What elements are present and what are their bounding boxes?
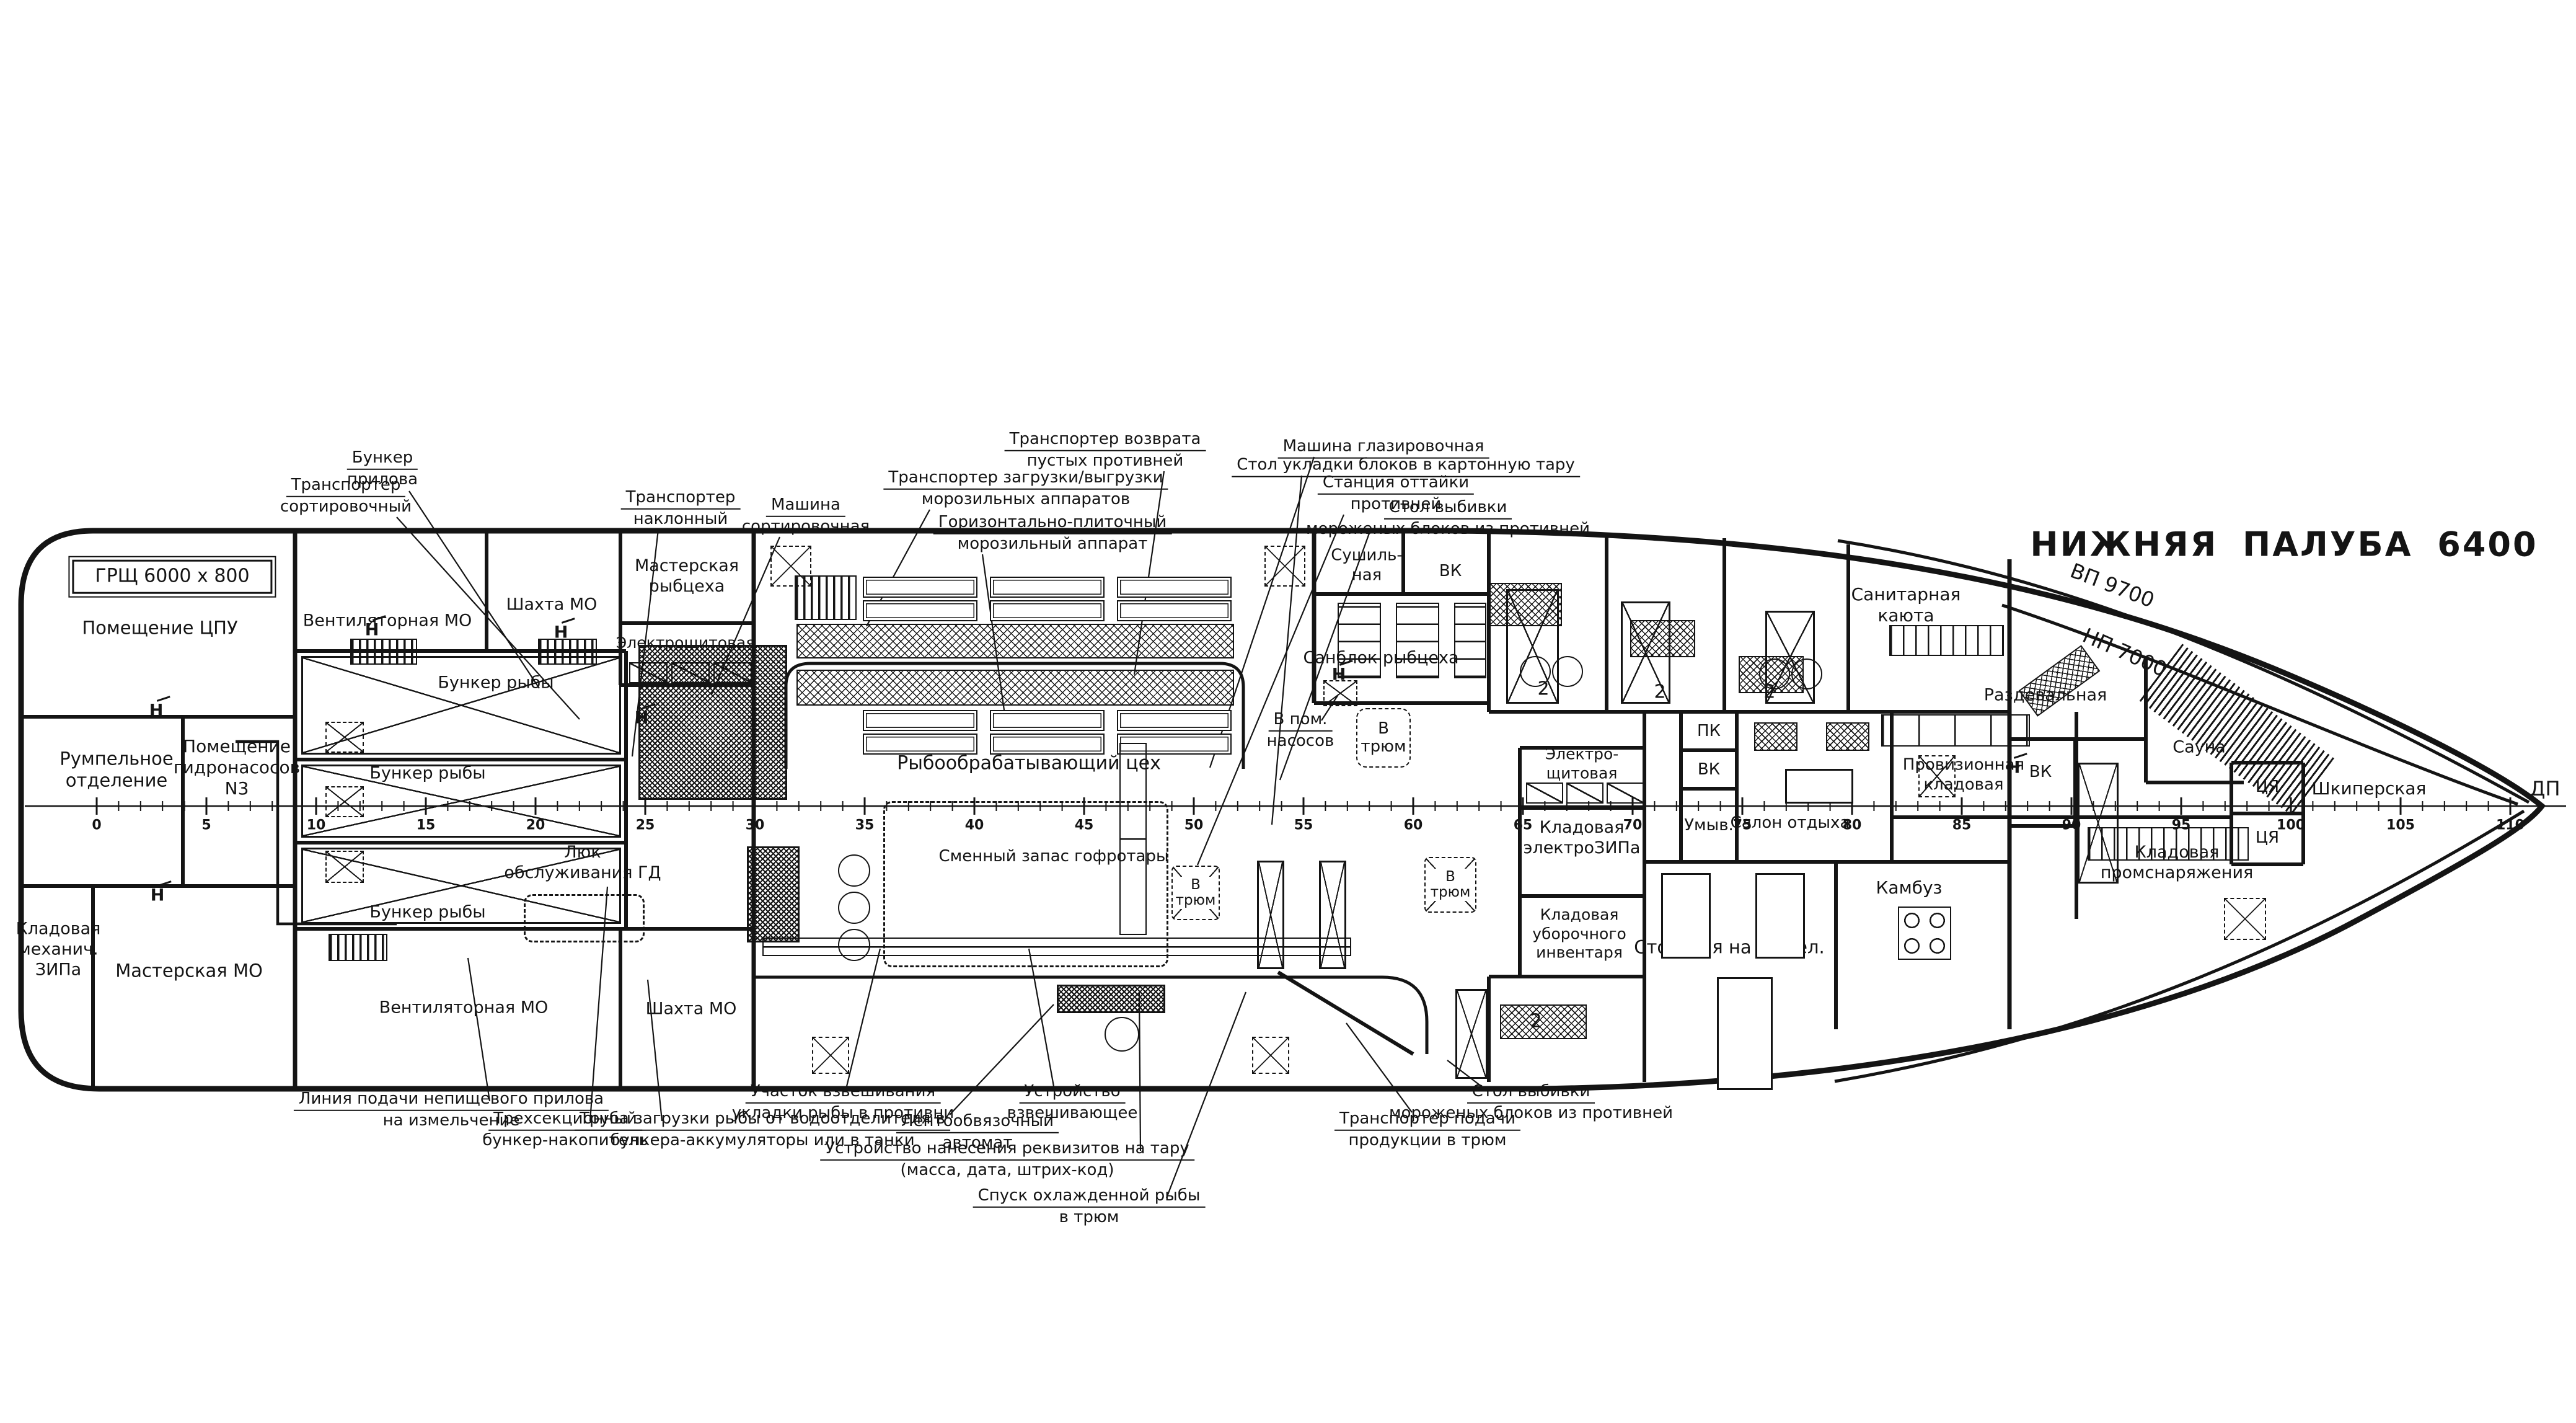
callout-label: Горизонтально-плиточныйморозильный аппар… [933,513,1172,554]
callout-line: мороженых блоков из противней [1306,520,1590,539]
leader-line [1139,992,1140,1151]
frame-number: 35 [855,818,875,833]
equipment-xdash [1252,1037,1289,1074]
equipment-diamond [1754,722,1797,751]
equipment-circle [1759,658,1790,689]
hold-hatch-label: В трюм [1429,869,1473,902]
room-label: Помещение ЦПУ [82,617,237,639]
drawing-title: НИЖНЯЯ ПАЛУБА 6400 [2030,525,2538,564]
callout-line: Стол выбивки [1389,1082,1673,1104]
equipment-circle [1105,1017,1139,1052]
room-label: ГРЩ 6000 х 800 [72,560,272,594]
equipment-xdash [1264,546,1305,587]
equipment-diamond [1630,620,1695,657]
callout-label: Транспортерсортировочный [280,476,412,516]
room-label: Мастерская МО [115,960,263,982]
frame-number: 60 [1404,818,1423,833]
callout-line: морозильный аппарат [933,534,1172,554]
equipment-table [1661,873,1711,959]
equipment-mesh [796,670,1234,706]
leader-line [468,958,490,1101]
callout-line: Стол выбивки [1306,498,1590,520]
equipment-freezer [990,577,1105,598]
room-label: ВК [1439,562,1462,582]
callout-line: насосов [1267,732,1334,751]
frame-number: 105 [2386,818,2415,833]
equipment-freezer [863,577,977,598]
callout-line: сортировочная [742,517,870,537]
equipment-dashbox [883,801,1168,967]
equipment-diamond [1488,583,1562,626]
room-label: Мастерская рыбцеха [635,556,739,597]
room-label: Вентиляторная МО [303,611,472,632]
room-label: ВК [2029,763,2052,782]
equipment-stove [1898,907,1951,960]
callout-label: Стол выбивкимороженых блоков из противне… [1389,1082,1673,1123]
callout-label: Транспортер загрузки/выгрузкиморозильных… [883,468,1168,509]
hold-hatch-box: В трюм [1171,866,1220,920]
callout-line: Транспортер возврата [1005,430,1206,451]
equipment-sbox [629,662,668,683]
callout-line: в трюм [973,1208,1206,1228]
callout-line: Транспортер [621,488,741,510]
frame-number: 55 [1294,818,1313,833]
frame-number: 100 [2277,818,2305,833]
equipment-lift [1257,861,1284,969]
equipment-sbox [1566,782,1603,804]
frame-number: 80 [1843,818,1862,833]
frame-number: 25 [636,818,655,833]
callout-line: продукции в трюм [1334,1131,1520,1151]
callout-line: пустых противней [1005,451,1206,471]
callout-label: Устройство нанесения реквизитов на тару(… [820,1139,1194,1180]
equipment-freezer [863,710,977,731]
equipment-lift [1319,861,1346,969]
equipment-ladder [1889,625,2004,656]
callout-line: В пом. [1267,710,1334,732]
equipment-xdash [325,851,364,883]
room-label: ВК [1698,760,1720,780]
hold-hatch-label: В трюм [1359,719,1408,756]
callout-line: Машина [742,495,870,517]
equipment-grill [350,639,417,665]
callout-line: Бункер [347,448,418,470]
callout-line: сортировочный [280,497,412,517]
callout-label: Транспортер возвратапустых противней [1005,430,1206,471]
hydrant-symbol: Н [149,701,164,720]
callout-line: мороженых блоков из противней [1389,1104,1673,1124]
room-label: Румпельное отделение [60,748,174,792]
equipment-grill [329,934,387,961]
equipment-diamond [1826,722,1869,751]
equipment-freezer [1117,577,1232,598]
equipment-freezer [863,600,977,621]
frame-number: 110 [2496,818,2525,833]
frame-number: 65 [1514,818,1533,833]
equipment-diamond [1500,1004,1587,1039]
callout-line: Устройство [1007,1082,1138,1104]
equipment-circle [838,854,870,887]
equipment-lift [1455,989,1488,1079]
room-label: Шкиперская [2312,778,2427,799]
callout-label: Стол выбивкимороженых блоков из противне… [1306,498,1590,539]
callout-line: наклонный [621,510,741,530]
equipment-circle [838,892,870,924]
equipment-circle [838,929,870,961]
equipment-mesh [796,624,1234,658]
room-label: Сушиль- ная [1331,546,1403,585]
callout-line: (масса, дата, штрих-код) [820,1161,1194,1181]
room-label: ПК [1697,722,1721,742]
equipment-freezer [1117,600,1232,621]
equipment-freezer [990,710,1105,731]
callout-line: Транспортер загрузки/выгрузки [883,468,1168,490]
hold-hatch-label: В трюм [1174,877,1218,910]
equipment-xdash [812,1037,849,1074]
equipment-sbox [1526,782,1563,804]
hydrant-symbol: Н [2006,758,2021,778]
deck-plan-sheet: НИЖНЯЯ ПАЛУБА 6400 ВП 9700 НП 7000 ДП ГР… [0,0,2576,1423]
equipment-table [1717,977,1773,1090]
equipment-xdash [1323,680,1357,706]
equipment-lift [2078,763,2119,884]
equipment-xdash [325,722,364,753]
frame-number: 5 [201,818,211,833]
callout-line: Станция оттайки [1318,473,1474,495]
equipment-xdash [770,546,811,587]
equipment-circle [1520,656,1551,687]
equipment-xdash [2224,898,2266,940]
room-label: Умыв. [1684,816,1734,836]
callout-label: Машинасортировочная [742,495,870,536]
callout-label: Транспортернаклонный [621,488,741,529]
hydrant-symbol: Н [365,621,379,640]
equipment-shelfh [1338,603,1381,678]
frame-number: 0 [92,818,101,833]
room-label: Вентиляторная МО [379,998,549,1019]
frame-number: 75 [1733,818,1752,833]
equipment-freezer [990,734,1105,755]
room-label: Помещение гидронасосов N3 [174,736,300,799]
equipment-table [1755,873,1805,959]
room-label: Электро- щитовая [1545,745,1619,783]
equipment-dense [1057,985,1165,1013]
callout-label: Устройствовзвешивающее [1007,1082,1138,1123]
equipment-grill [538,639,597,665]
leader-line [1029,949,1054,1086]
equipment-ladder [2088,827,2249,861]
room-label: Санитарная каюта [1851,584,1961,626]
equipment-xdash [1918,755,1956,797]
equipment-circle [1791,658,1822,689]
callout-line: Спуск охлажденной рыбы [973,1186,1206,1208]
callout-line: Участок взвешивания [732,1082,955,1104]
equipment-shelfv [1881,714,2030,747]
room-label: ЦЯ [2256,828,2279,848]
equipment-table [1785,769,1853,804]
equipment-freezer [990,600,1105,621]
callout-line: Транспортер [280,476,412,497]
callout-label: В пом.насосов [1267,710,1334,751]
callout-line: Устройство нанесения реквизитов на тару [820,1139,1194,1161]
room-label: Шахта МО [646,1000,737,1020]
equipment-xdash [325,786,364,817]
equipment-freezer [863,734,977,755]
room-label: Шахта МО [506,595,598,616]
equipment-shelfh [1454,603,1486,678]
frame-number: 50 [1184,818,1204,833]
hold-hatch-box: В трюм [1356,708,1411,768]
callout-line: морозильных аппаратов [883,490,1168,510]
callout-line: Горизонтально-плиточный [933,513,1172,534]
equipment-sbox [1607,782,1644,804]
equipment-freezer [1117,710,1232,731]
room-label: Кладовая уборочного инвентаря [1532,905,1626,962]
callout-line: взвешивающее [1007,1104,1138,1124]
callout-label: Спуск охлажденной рыбыв трюм [973,1186,1206,1227]
frame-number: 70 [1623,818,1643,833]
equipment-sbox [713,662,752,683]
equipment-shelfh [1396,603,1439,678]
equipment-dense [747,846,800,942]
hold-hatch-box: В трюм [1424,857,1476,913]
hydrant-symbol: Н [151,886,165,905]
leader-line [847,949,880,1086]
room-label: Кладовая механич. ЗИПа [16,920,101,981]
centerline-label: ДП [2530,777,2560,800]
frame-number: 85 [1952,818,1972,833]
frame-number: 30 [746,818,765,833]
callout-line: Линия подачи непищевого прилова [294,1089,609,1111]
equipment-dashbox [524,894,645,942]
room-label: Камбуз [1876,877,1943,898]
equipment-circle [1552,656,1583,687]
equipment-sbox [671,662,710,683]
